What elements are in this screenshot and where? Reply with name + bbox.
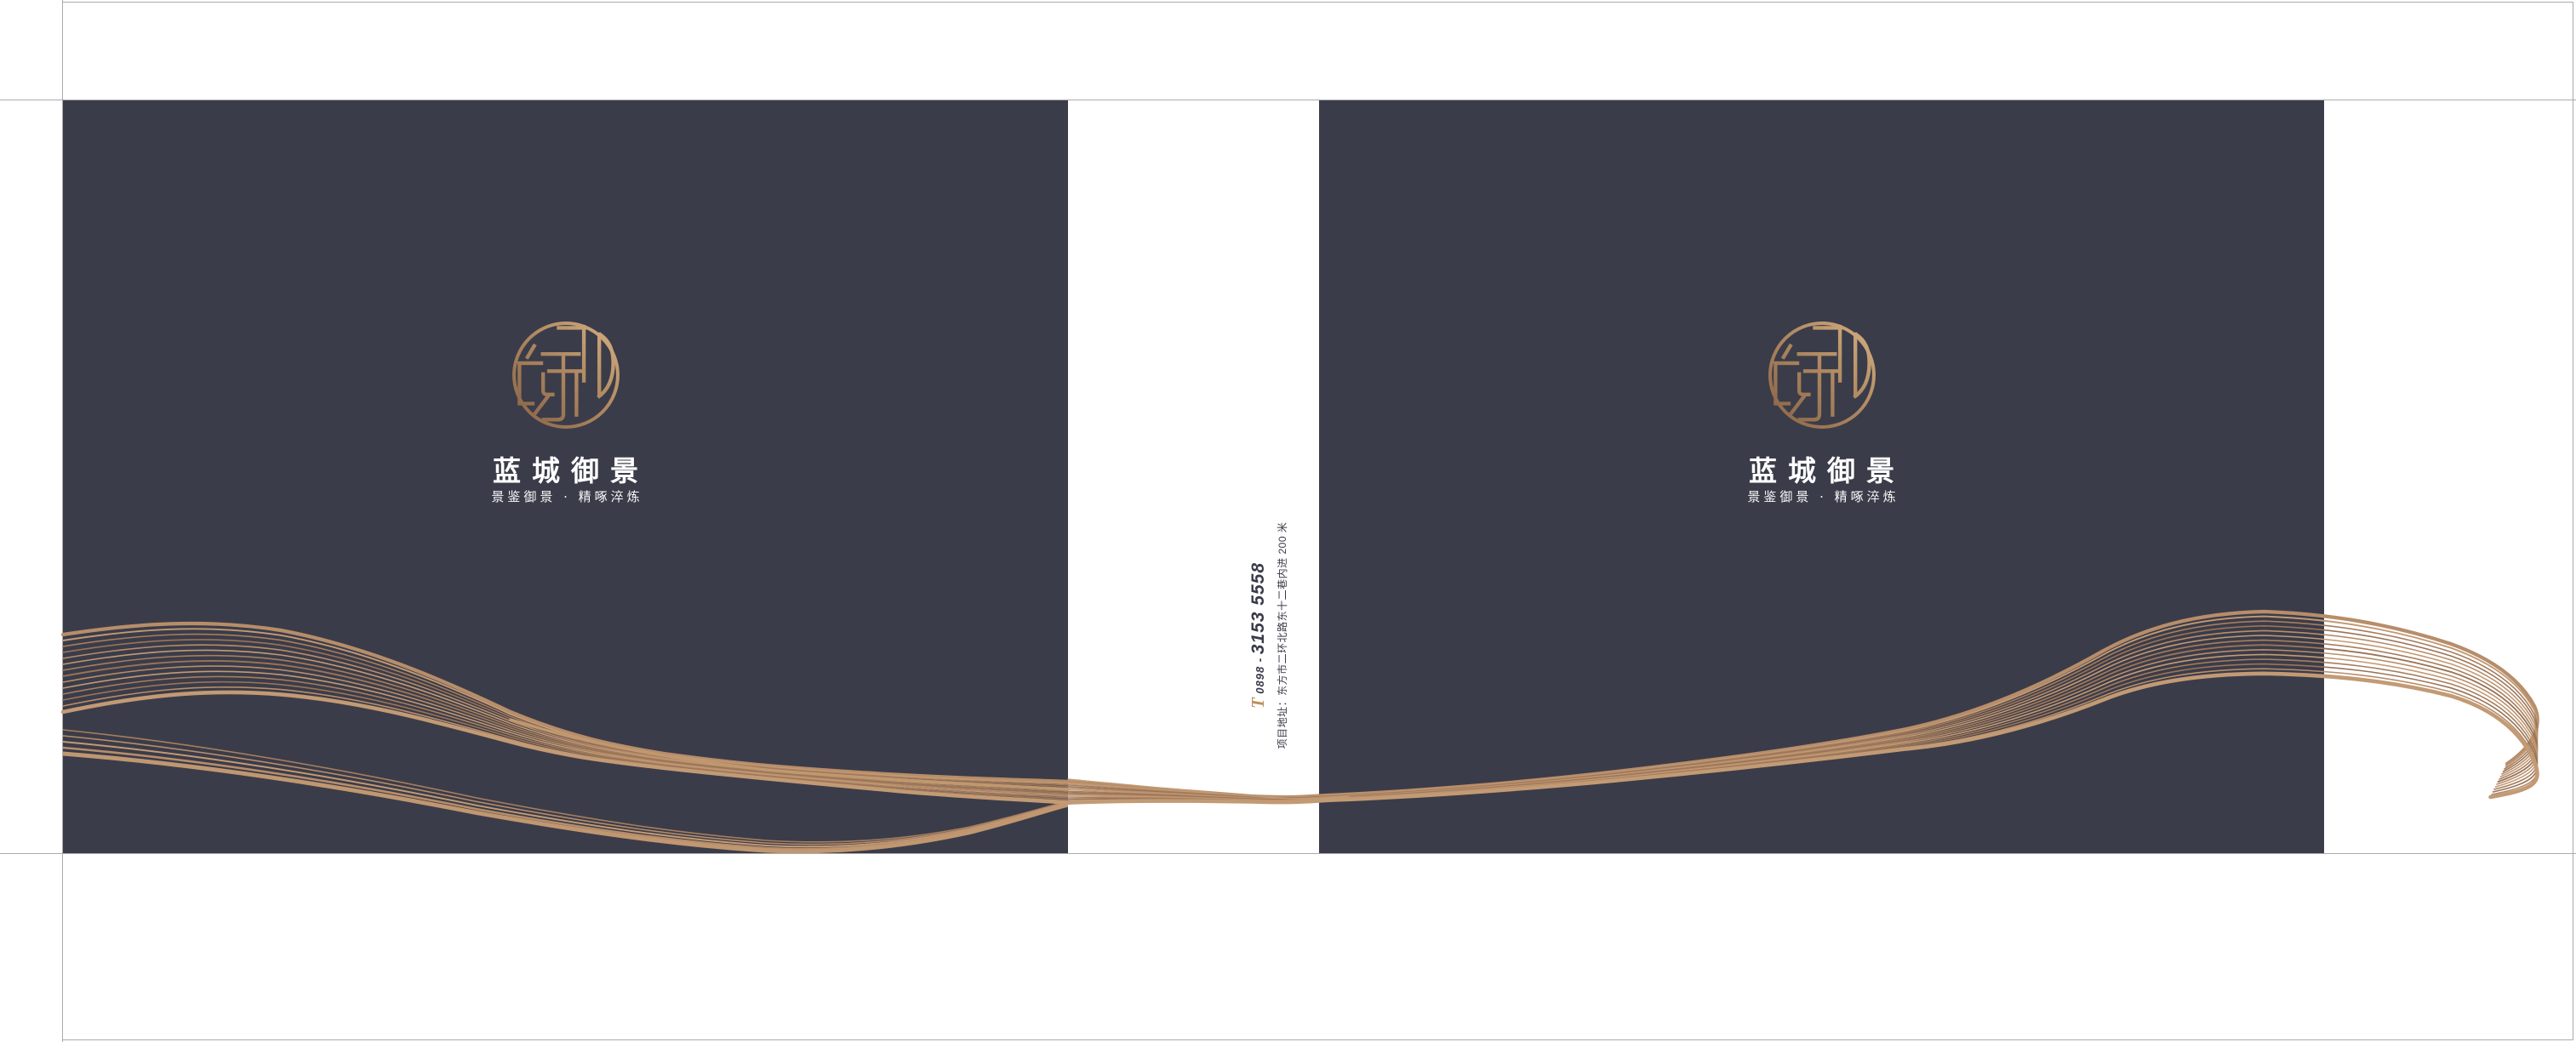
- phone-prefix: 0898: [1254, 666, 1266, 694]
- project-address: 项目地址：东方市二环北路东十二巷内进 200 米: [1275, 508, 1289, 763]
- back-cover-panel: 蓝城御景 景鉴御景 · 精啄淬炼: [63, 100, 1068, 853]
- brand-title: 蓝城御景: [63, 448, 1068, 489]
- phone-icon: T: [1248, 698, 1268, 709]
- phone-separator: -: [1253, 658, 1266, 663]
- brand-title: 蓝城御景: [1319, 448, 2324, 489]
- phone-number: 3153 5558: [1248, 562, 1268, 654]
- yu-seal-logo-icon: [1765, 318, 1879, 432]
- spine-phone-line: T 0898 - 3153 5558: [1245, 508, 1273, 763]
- print-sheet: 蓝城御景 景鉴御景 · 精啄淬炼 蓝城御景 景鉴御景 · 精啄淬炼 T 0898…: [0, 0, 2576, 1042]
- front-cover-panel: 蓝城御景 景鉴御景 · 精啄淬炼: [1319, 100, 2324, 853]
- bottom-fold-guide-line: [0, 853, 2576, 854]
- yu-seal-logo-icon: [509, 318, 623, 432]
- brand-tagline: 景鉴御景 · 精啄淬炼: [1319, 487, 2324, 505]
- brand-tagline: 景鉴御景 · 精啄淬炼: [63, 487, 1068, 505]
- spine: T 0898 - 3153 5558 项目地址：东方市二环北路东十二巷内进 20…: [1245, 508, 1293, 763]
